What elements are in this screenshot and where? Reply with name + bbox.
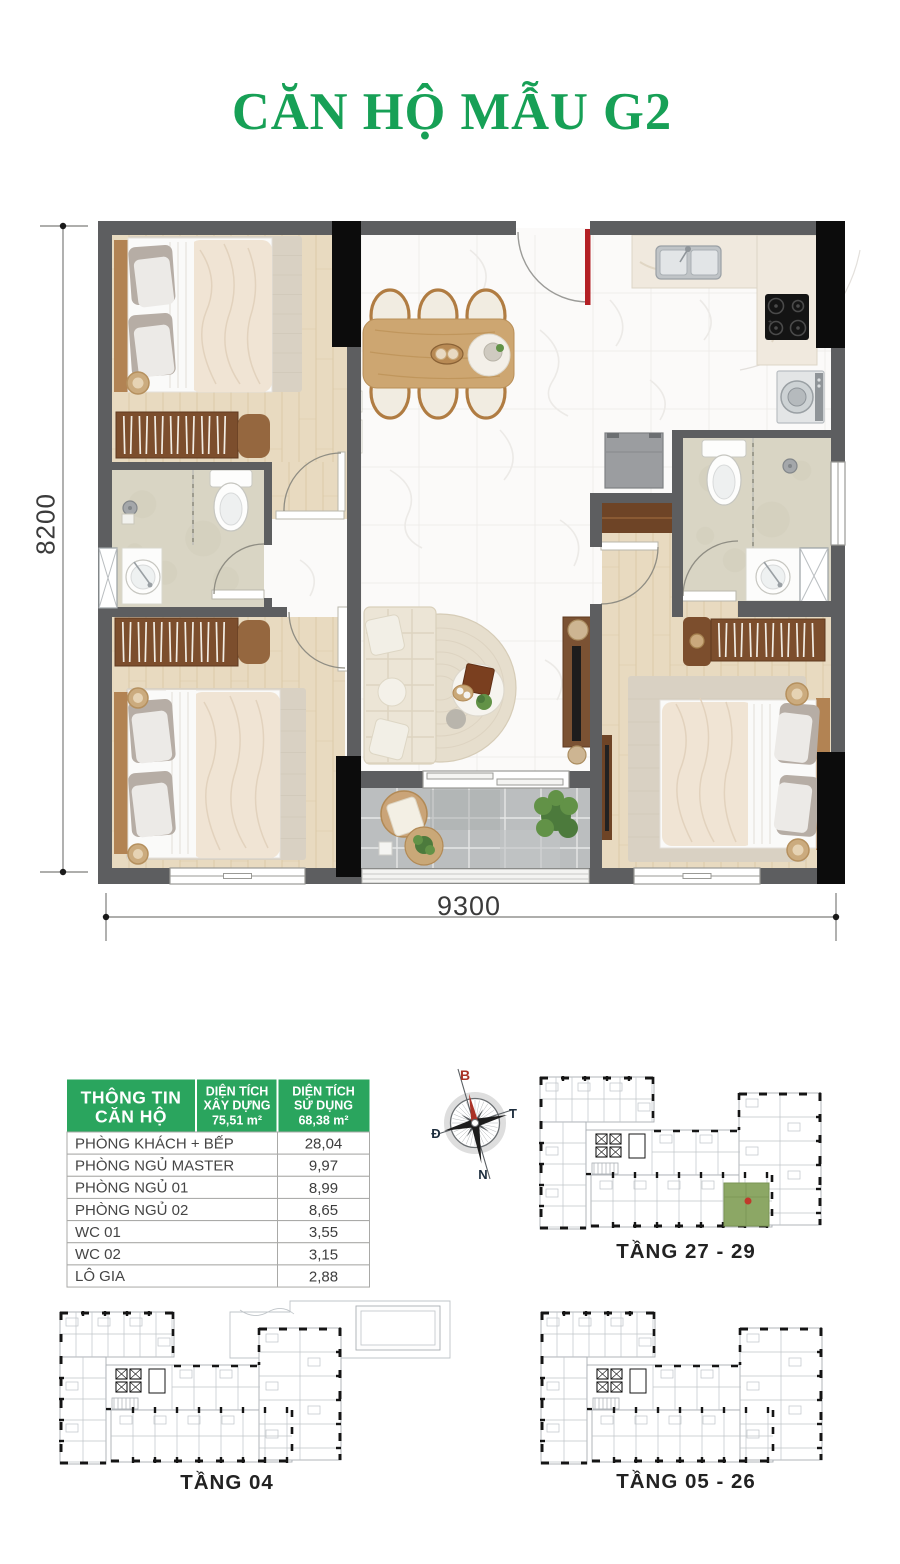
svg-text:T: T [509, 1106, 517, 1121]
svg-text:B: B [460, 1067, 470, 1083]
svg-text:PHÒNG NGỦ 01: PHÒNG NGỦ 01 [75, 1179, 188, 1197]
svg-text:TẦNG 04: TẦNG 04 [180, 1471, 274, 1494]
svg-text:8,65: 8,65 [309, 1202, 338, 1219]
svg-text:PHÒNG NGỦ 02: PHÒNG NGỦ 02 [75, 1201, 188, 1219]
svg-text:XÂY DỰNG: XÂY DỰNG [203, 1098, 270, 1113]
svg-text:8200: 8200 [31, 493, 61, 555]
svg-text:CĂN HỘ: CĂN HỘ [95, 1106, 167, 1127]
svg-text:Đ: Đ [431, 1126, 440, 1141]
svg-text:THÔNG TIN: THÔNG TIN [81, 1087, 182, 1108]
svg-text:9300: 9300 [437, 891, 501, 921]
svg-text:N: N [478, 1167, 487, 1182]
svg-text:DIỆN TÍCH: DIỆN TÍCH [292, 1084, 355, 1099]
svg-text:68,38 m²: 68,38 m² [298, 1114, 348, 1128]
svg-text:WC 02: WC 02 [75, 1246, 121, 1263]
svg-text:TẦNG 05 - 26: TẦNG 05 - 26 [616, 1470, 756, 1493]
svg-text:8,99: 8,99 [309, 1180, 338, 1197]
svg-text:CĂN HỘ MẪU G2: CĂN HỘ MẪU G2 [232, 81, 672, 141]
svg-text:PHÒNG KHÁCH + BẾP: PHÒNG KHÁCH + BẾP [75, 1135, 234, 1152]
svg-text:SỬ DỤNG: SỬ DỤNG [294, 1098, 353, 1113]
svg-text:DIỆN TÍCH: DIỆN TÍCH [206, 1084, 269, 1099]
svg-text:75,51 m²: 75,51 m² [212, 1114, 262, 1128]
svg-text:3,15: 3,15 [309, 1246, 338, 1263]
svg-text:WC 01: WC 01 [75, 1224, 121, 1241]
svg-text:TẦNG 27 - 29: TẦNG 27 - 29 [616, 1240, 756, 1263]
svg-text:3,55: 3,55 [309, 1224, 338, 1241]
svg-text:LÔ GIA: LÔ GIA [75, 1268, 125, 1285]
svg-text:+: + [768, 319, 772, 326]
svg-text:2,88: 2,88 [309, 1268, 338, 1285]
svg-text:PHÒNG NGỦ MASTER: PHÒNG NGỦ MASTER [75, 1156, 234, 1174]
svg-text:28,04: 28,04 [305, 1136, 343, 1153]
svg-text:9,97: 9,97 [309, 1158, 338, 1175]
